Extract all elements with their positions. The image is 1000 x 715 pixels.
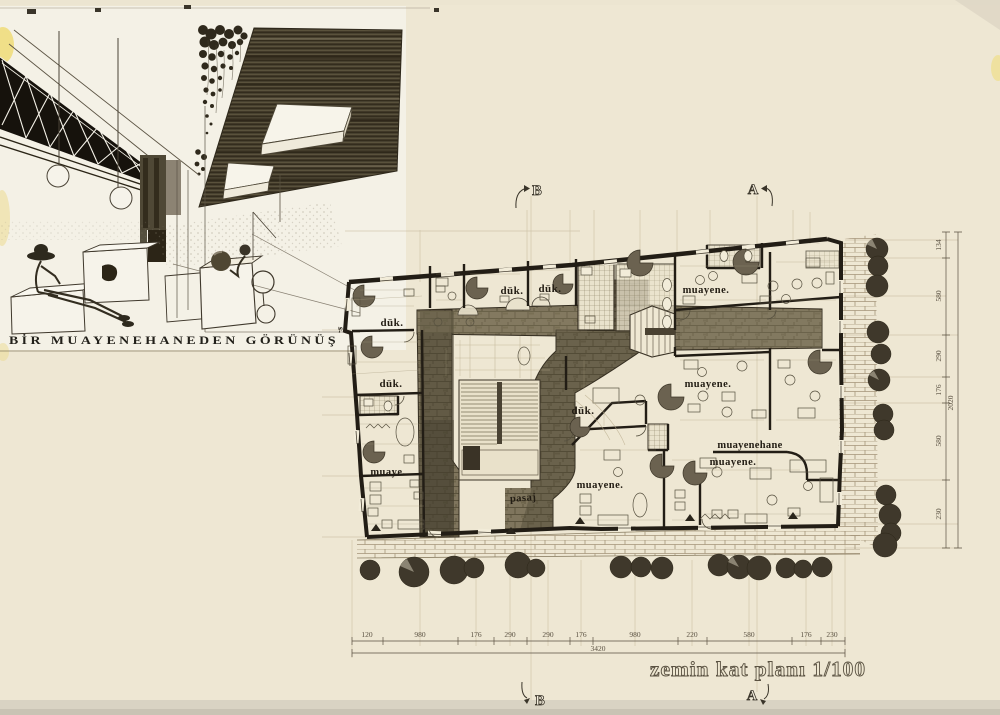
svg-text:muayene.: muayene. xyxy=(577,480,624,491)
svg-text:290: 290 xyxy=(934,350,943,362)
svg-text:176: 176 xyxy=(470,630,482,639)
svg-text:580: 580 xyxy=(934,290,943,302)
svg-text:980: 980 xyxy=(629,630,641,639)
svg-text:220: 220 xyxy=(686,630,698,639)
svg-text:230: 230 xyxy=(934,508,943,520)
svg-text:176: 176 xyxy=(800,630,812,639)
svg-text:134: 134 xyxy=(934,239,943,251)
svg-text:580: 580 xyxy=(743,630,755,639)
svg-text:3420: 3420 xyxy=(591,644,606,653)
svg-text:zemin kat planı 1/100: zemin kat planı 1/100 xyxy=(650,657,866,681)
svg-text:290: 290 xyxy=(504,630,516,639)
svg-text:A: A xyxy=(747,688,758,704)
svg-text:muayenehane: muayenehane xyxy=(717,440,782,451)
svg-text:2020: 2020 xyxy=(946,395,955,410)
svg-text:230: 230 xyxy=(826,630,838,639)
svg-text:pasaj: pasaj xyxy=(510,492,537,505)
svg-text:A: A xyxy=(748,182,759,198)
svg-text:B: B xyxy=(535,693,545,709)
svg-text:muayene.: muayene. xyxy=(683,285,730,296)
svg-text:muaye.: muaye. xyxy=(370,467,405,478)
svg-text:muayene.: muayene. xyxy=(710,457,757,468)
svg-text:B: B xyxy=(532,183,542,199)
svg-text:dük.: dük. xyxy=(379,378,402,390)
svg-text:dük.: dük. xyxy=(500,285,523,297)
svg-text:dük.: dük. xyxy=(571,405,594,417)
svg-text:muayene.: muayene. xyxy=(685,379,732,390)
svg-text:580: 580 xyxy=(934,435,943,447)
svg-text:176: 176 xyxy=(575,630,587,639)
svg-text:980: 980 xyxy=(414,630,426,639)
svg-text:290: 290 xyxy=(542,630,554,639)
svg-text:176: 176 xyxy=(934,384,943,396)
svg-text:dük.: dük. xyxy=(380,317,403,329)
svg-text:dük.: dük. xyxy=(538,283,561,295)
svg-text:BİR MUAYENEHANEDEN GÖRÜNÜŞ: BİR MUAYENEHANEDEN GÖRÜNÜŞ xyxy=(9,333,339,347)
svg-text:120: 120 xyxy=(361,630,373,639)
